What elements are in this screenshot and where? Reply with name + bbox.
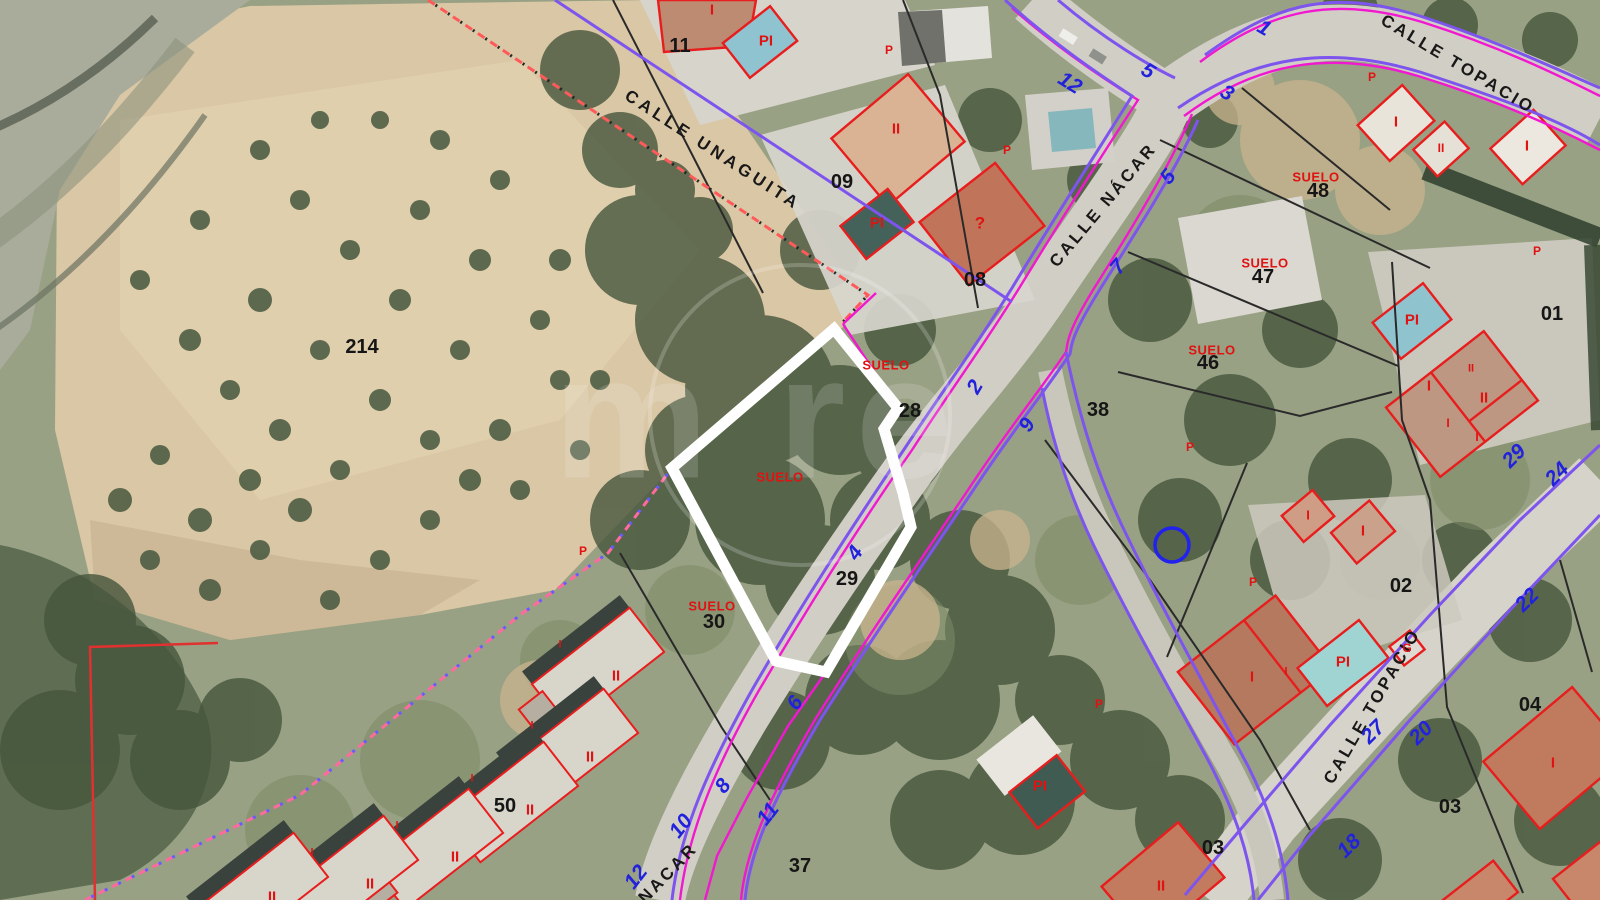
building-storey-mark: I: [1284, 667, 1287, 678]
address-number-label: 5: [1137, 59, 1158, 83]
building-storey-mark: I: [395, 821, 398, 832]
address-number-label: 12: [1055, 68, 1086, 98]
address-number-label: 1: [1254, 16, 1275, 40]
parcel-number-label: 09: [831, 172, 853, 192]
address-number-label: 7: [1106, 256, 1130, 278]
address-number-label: 22: [1511, 584, 1542, 615]
building-storey-mark: II: [268, 890, 276, 900]
address-number-label: 5: [1156, 166, 1180, 188]
building-storey-mark: II: [366, 877, 374, 892]
building-storey-mark: I: [530, 721, 533, 732]
building-storey-mark: I: [470, 774, 473, 785]
parcel-number-label: 50: [494, 796, 516, 816]
pool-p-marker: P: [1095, 698, 1103, 710]
address-number-label: 10: [666, 810, 697, 841]
parcel-number-label: 01: [1541, 304, 1563, 324]
building-storey-mark: II: [1468, 364, 1474, 375]
parcel-number-label: 37: [789, 856, 811, 876]
building-storey-mark: PI: [759, 34, 773, 49]
parcel-number-label: 03: [1439, 797, 1461, 817]
street-name-label: CALLE NÁCAR: [1046, 140, 1159, 270]
suelo-label: SUELO: [1292, 171, 1339, 184]
pool-p-marker: P: [1249, 576, 1257, 588]
building-storey-mark: PI: [1033, 779, 1047, 794]
cadastral-map-viewport[interactable]: m re CALLE UNAGUITACALLE NÁCARCALLE TOPA…: [0, 0, 1600, 900]
suelo-label: SUELO: [1188, 344, 1235, 357]
parcel-number-label: 02: [1390, 576, 1412, 596]
building-storey-mark: PI: [870, 216, 884, 231]
address-number-label: 11: [753, 799, 783, 829]
building-storey-mark: PI: [1405, 313, 1419, 328]
suelo-label: SUELO: [756, 471, 803, 484]
building-storey-mark: I: [1394, 115, 1398, 130]
pool-p-marker: P: [1003, 144, 1011, 156]
address-number-label: 29: [1498, 440, 1529, 471]
building-storey-mark: I: [1361, 524, 1365, 539]
street-name-label: CALLE UNAGUITA: [622, 87, 804, 213]
address-number-label: 3: [1217, 81, 1238, 105]
building-storey-mark: I: [1551, 756, 1555, 771]
address-number-label: 8: [711, 775, 735, 797]
address-number-label: 4: [843, 542, 867, 564]
building-storey-mark: G: [1402, 642, 1411, 654]
parcel-number-label: 08: [964, 270, 986, 290]
map-labels-layer: CALLE UNAGUITACALLE NÁCARCALLE TOPACIOCA…: [0, 0, 1600, 900]
building-storey-mark: I: [1306, 509, 1310, 522]
address-number-label: 2: [963, 377, 987, 398]
address-number-label: 18: [1333, 830, 1364, 861]
building-storey-mark: I: [1427, 379, 1431, 394]
parcel-number-label: 04: [1519, 695, 1541, 715]
building-storey-mark: I: [1525, 139, 1529, 154]
building-storey-mark: I: [1475, 431, 1478, 443]
building-storey-mark: II: [451, 850, 459, 865]
building-storey-mark: ?: [975, 215, 985, 232]
parcel-number-label: 03: [1202, 838, 1224, 858]
building-storey-mark: I: [558, 640, 561, 651]
building-storey-mark: II: [1438, 142, 1445, 154]
building-storey-mark: I: [1250, 670, 1254, 685]
building-storey-mark: I: [310, 848, 313, 859]
parcel-number-label: 38: [1087, 400, 1109, 420]
building-storey-mark: I: [1446, 417, 1449, 429]
street-name-label: CALLE TOPACIO: [1378, 11, 1538, 116]
address-number-label: 9: [1015, 415, 1039, 436]
pool-p-marker: P: [1368, 71, 1376, 83]
pool-p-marker: P: [1186, 441, 1194, 453]
pool-p-marker: P: [1533, 245, 1541, 257]
parcel-number-label: 28: [899, 401, 921, 421]
building-storey-mark: II: [1157, 879, 1165, 894]
building-storey-mark: PI: [1336, 655, 1350, 670]
building-storey-mark: II: [892, 122, 900, 137]
pool-p-marker: P: [885, 44, 893, 56]
address-number-label: 24: [1541, 458, 1572, 489]
address-number-label: 20: [1405, 717, 1436, 748]
parcel-number-label: 30: [703, 612, 725, 632]
building-storey-mark: II: [612, 669, 620, 684]
building-storey-mark: I: [710, 3, 714, 18]
parcel-number-label: 214: [345, 337, 378, 357]
suelo-label: SUELO: [862, 359, 909, 372]
building-storey-mark: II: [526, 803, 534, 818]
suelo-label: SUELO: [1241, 257, 1288, 270]
parcel-number-label: 29: [836, 569, 858, 589]
pool-p-marker: P: [579, 545, 587, 557]
building-storey-mark: II: [1480, 391, 1488, 406]
building-storey-mark: II: [586, 750, 594, 765]
address-number-label: 6: [783, 692, 807, 714]
suelo-label: SUELO: [688, 600, 735, 613]
parcel-number-label: 11: [669, 36, 690, 56]
